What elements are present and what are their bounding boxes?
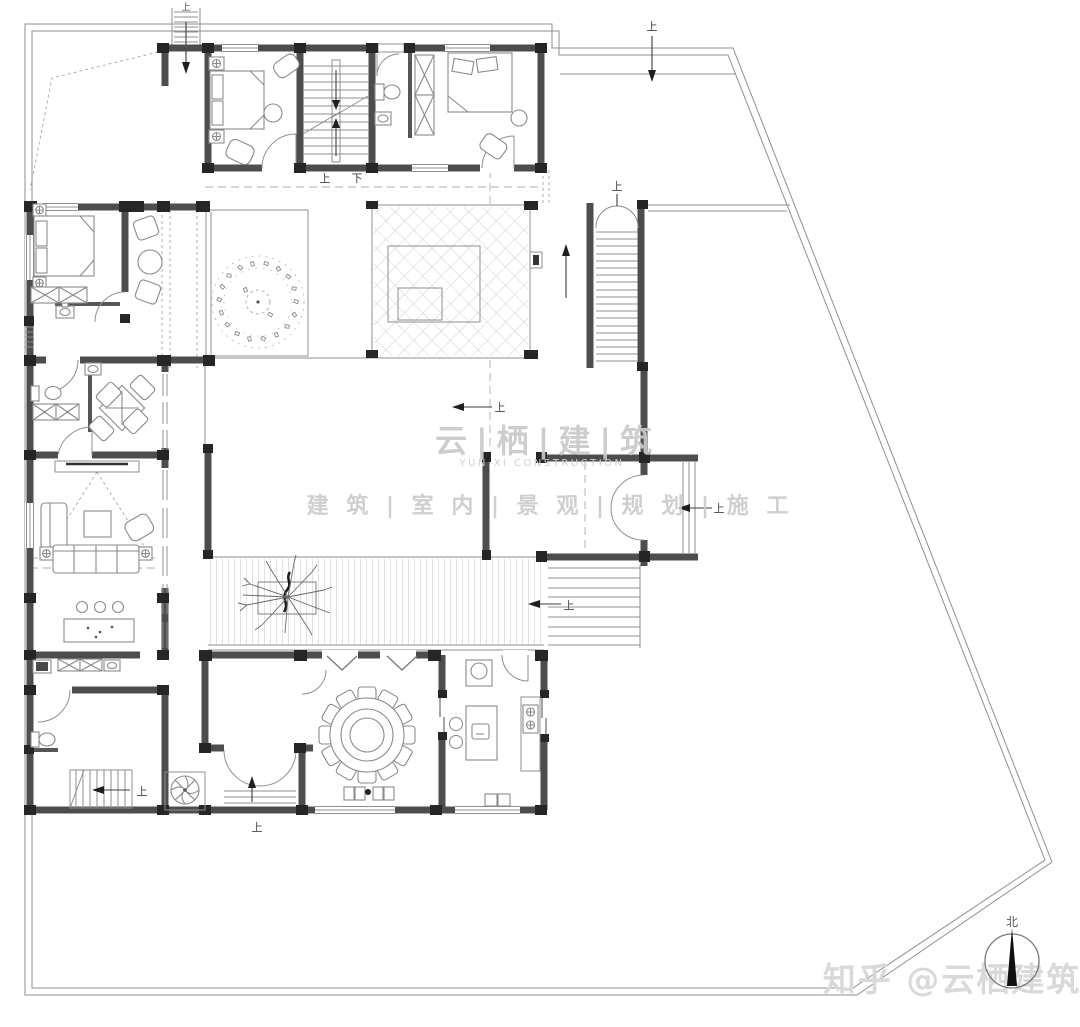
- yard-setback-dashed-line: [30, 52, 158, 190]
- bar-counter: [64, 602, 134, 643]
- up-label-central-stair: 上: [320, 172, 331, 185]
- down-label-central-stair: 下: [352, 172, 363, 185]
- planter-south: [165, 772, 205, 810]
- compass-needle: [1007, 928, 1017, 986]
- stair-southwest: [70, 770, 132, 808]
- watermark-brand: 云|栖|建|筑: [435, 422, 661, 461]
- zhihu-credit-watermark: 知乎 @云栖建筑: [823, 960, 1080, 999]
- living-room: [40, 461, 156, 573]
- up-label-southwest-stair: 上: [137, 785, 148, 798]
- up-label-northeast: 上: [647, 20, 658, 33]
- dining-shoe-cabinet: [344, 787, 394, 800]
- up-label-courtyard: 上: [495, 401, 506, 414]
- floor-plan-drawing: 上 上 上 下 上 上 上 上 上 上 云|栖|建|筑 YUN XI CONST…: [0, 0, 1080, 1027]
- porch-steps-south: [224, 776, 296, 803]
- floor-plan-canvas: 上 上 上 下 上 上 上 上 上 上 云|栖|建|筑 YUN XI CONST…: [0, 0, 1080, 1027]
- watermark-services: 建 筑 | 室 内 | 景 观 | 规 划 | 施 工: [307, 493, 794, 519]
- deck-east-steps: [548, 565, 640, 648]
- watermark-brand-sub: YUN XI CONSTRUCTION: [458, 458, 624, 469]
- terrace-gate-symbol: [530, 252, 542, 268]
- round-dining-table: [319, 687, 415, 783]
- exterior-top-steps: [172, 8, 200, 74]
- kitchen: [450, 660, 541, 806]
- bedroom-west: [31, 204, 162, 318]
- wc-south: [31, 732, 55, 747]
- watermark-center: 云|栖|建|筑 YUN XI CONSTRUCTION 建 筑 | 室 内 | …: [307, 422, 794, 519]
- up-label-deck: 上: [564, 599, 575, 612]
- paved-terrace: [372, 205, 542, 358]
- stair-east-exterior: [596, 194, 638, 361]
- up-label-south-porch: 上: [252, 821, 263, 834]
- exterior-northeast-entry-arrow: [648, 36, 656, 82]
- up-label-top-steps: 上: [181, 2, 190, 13]
- up-label-east-stair: 上: [612, 180, 623, 193]
- bedroom-northeast: [375, 53, 527, 161]
- mudroom-cabinets: [33, 659, 120, 673]
- bedroom-northwest: [209, 52, 301, 167]
- stair-north-central: [303, 60, 369, 162]
- compass-north-label: 北: [1006, 915, 1018, 929]
- gravel-garden: [206, 210, 308, 356]
